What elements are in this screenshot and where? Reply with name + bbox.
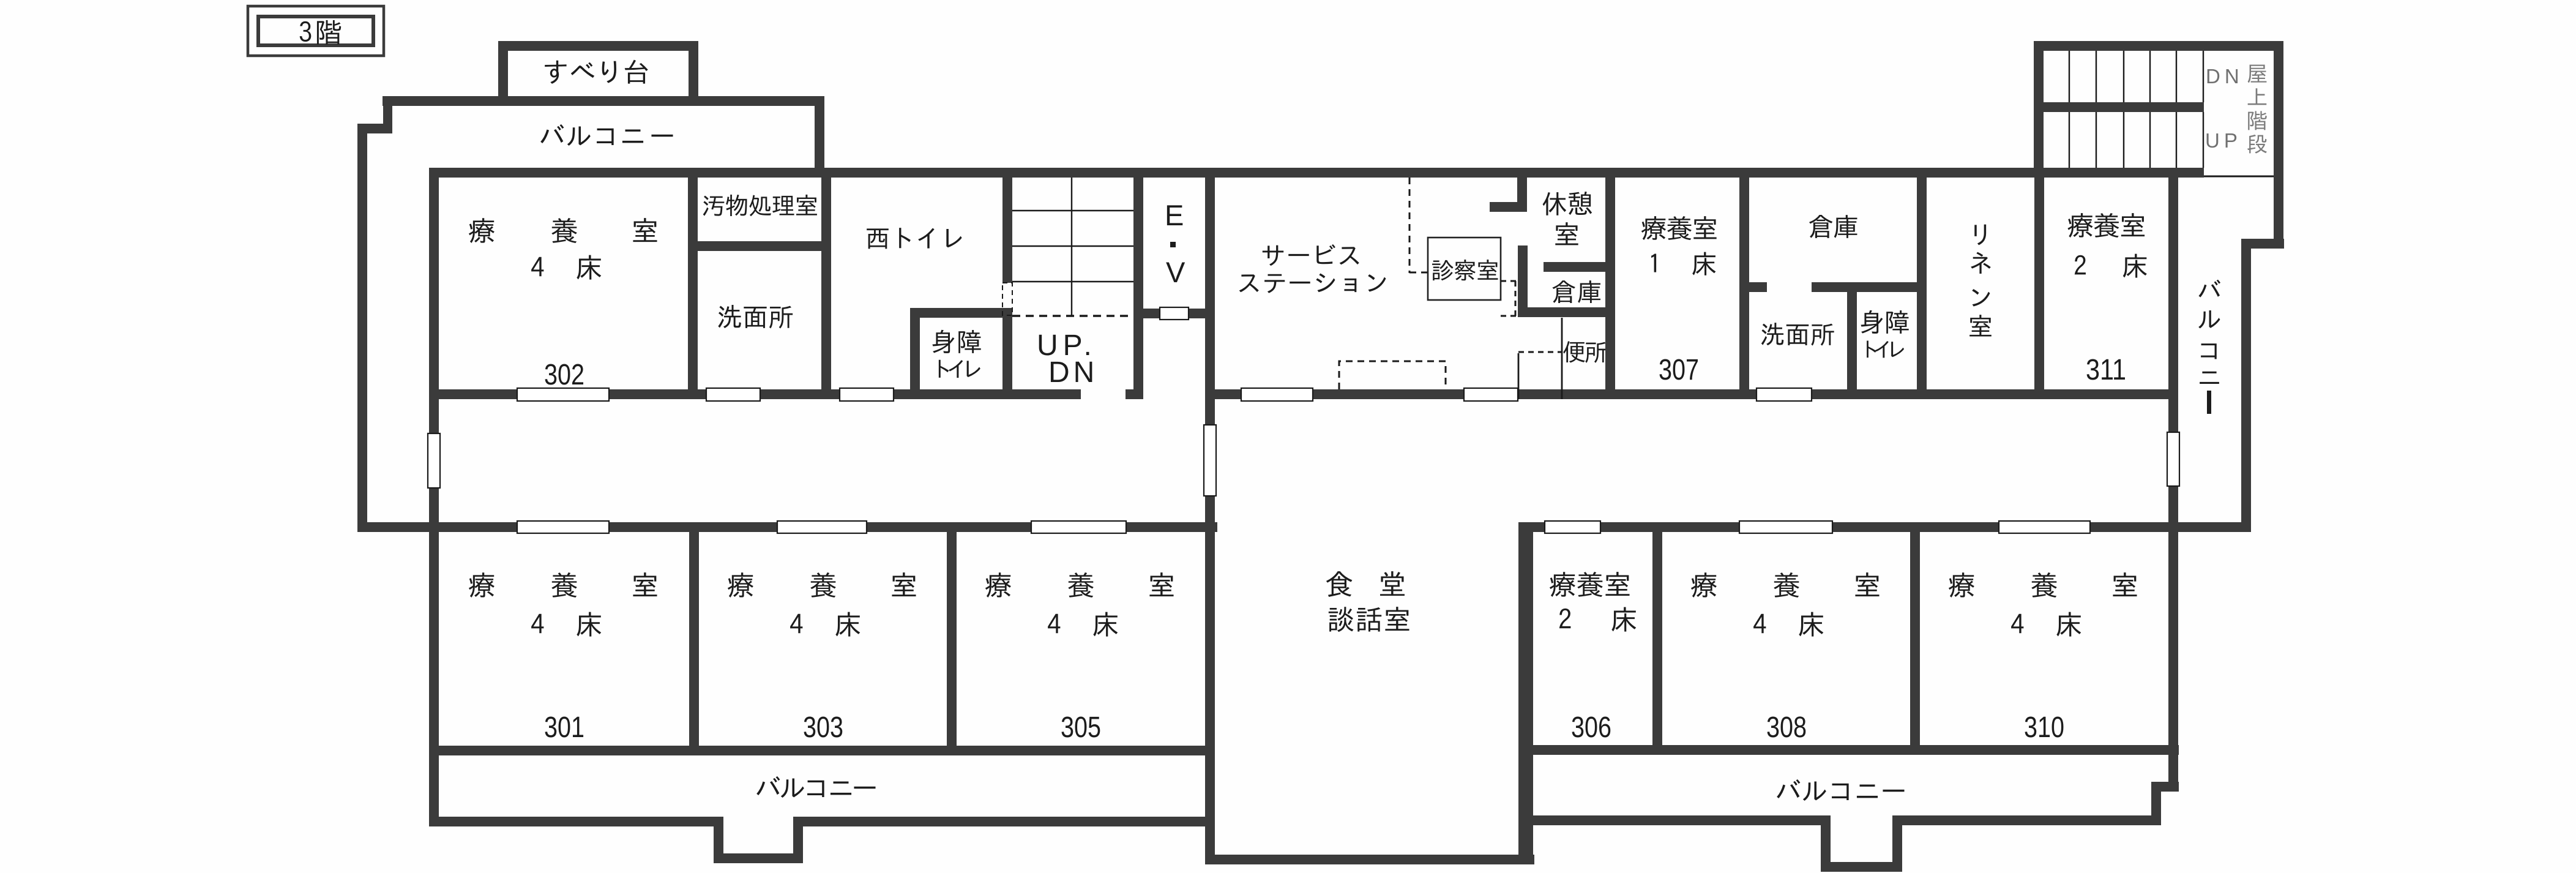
svg-text:V: V bbox=[1166, 256, 1185, 288]
svg-text:DN: DN bbox=[1048, 356, 1098, 389]
svg-text:310: 310 bbox=[2024, 711, 2064, 744]
svg-text:307: 307 bbox=[1659, 354, 1699, 386]
svg-text:E: E bbox=[1165, 199, 1184, 231]
svg-text:DN: DN bbox=[2206, 65, 2244, 88]
svg-text:306: 306 bbox=[1571, 711, 1611, 744]
svg-text:311: 311 bbox=[2086, 354, 2126, 386]
svg-text:302: 302 bbox=[544, 359, 584, 391]
svg-text:UP: UP bbox=[2205, 129, 2242, 152]
svg-text:308: 308 bbox=[1766, 711, 1807, 744]
svg-text:303: 303 bbox=[803, 711, 843, 744]
svg-text:305: 305 bbox=[1061, 711, 1101, 744]
svg-text:301: 301 bbox=[544, 711, 584, 744]
